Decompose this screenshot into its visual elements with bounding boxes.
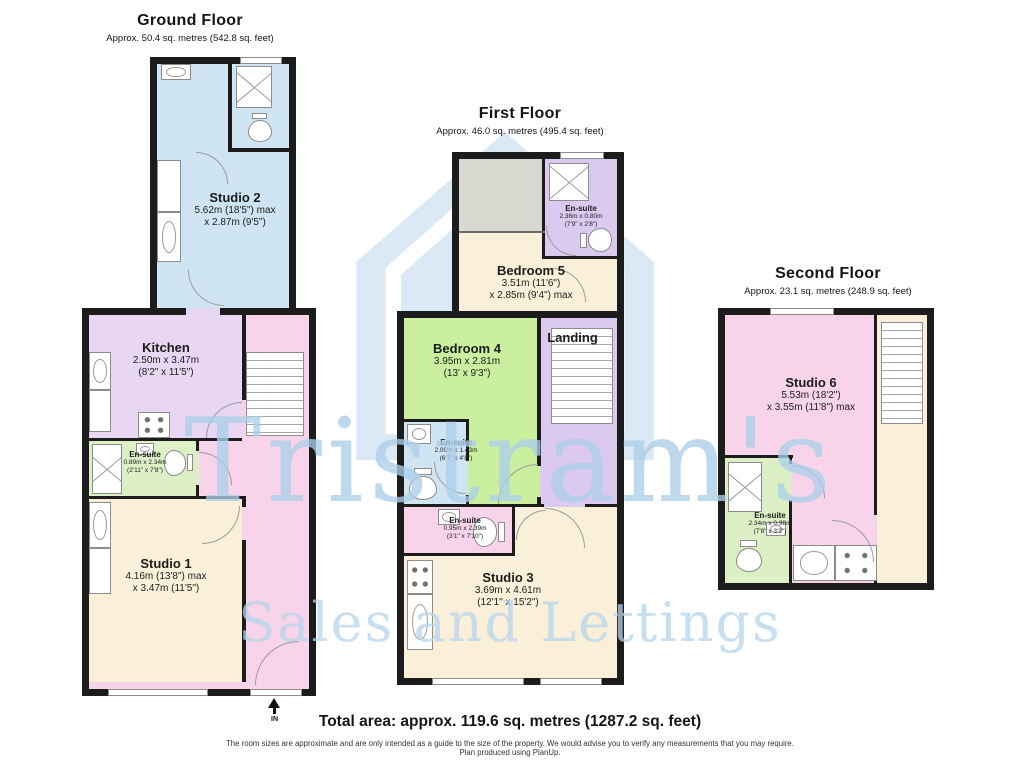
interior-wall <box>404 553 515 556</box>
sink-icon <box>161 64 191 80</box>
room-name: En-suite <box>425 438 487 447</box>
floor-subtitle-text: Approx. 46.0 sq. metres (495.4 sq. feet) <box>395 126 645 137</box>
room-label-bedroom5: Bedroom 5 3.51m (11'6") x 2.85m (9'4") m… <box>471 263 591 302</box>
room-label-ensuite-second: En-suite 2.34m x 0.98m (7'8" x 3'3") <box>732 511 808 536</box>
room-label-studio3: Studio 3 3.69m x 4.61m (12'1" x 15'2") <box>448 570 568 609</box>
room-name: Studio 1 <box>101 556 231 571</box>
entrance-threshold <box>250 689 302 696</box>
room-dims: x 3.55m (11'8") max <box>751 402 871 414</box>
floor-title-text: First Floor <box>395 105 645 123</box>
window <box>540 678 602 685</box>
sink-icon <box>89 502 111 548</box>
room-dims: 0.89m x 2.34m <box>107 459 183 467</box>
partition-line <box>459 231 545 233</box>
interior-wall <box>874 315 877 515</box>
interior-wall <box>89 438 242 441</box>
room-name: Studio 3 <box>448 570 568 585</box>
room-name: Kitchen <box>106 340 226 355</box>
room-dims: 5.62m (18'5") max <box>175 205 295 217</box>
shower-icon <box>728 462 762 512</box>
toilet-icon <box>248 120 272 142</box>
room-name: Landing <box>535 330 610 345</box>
entrance-arrow-icon <box>268 698 280 708</box>
produced-by-text: Plan produced using PlanUp. <box>0 748 1020 757</box>
room-dims: 4.16m (13'8") max <box>101 571 231 583</box>
interior-wall <box>404 419 469 422</box>
hob-icon <box>407 560 433 594</box>
disclaimer-text: The room sizes are approximate and are o… <box>0 739 1020 748</box>
room-dims: 2.50m x 3.47m <box>106 355 226 367</box>
shower-icon <box>549 163 589 201</box>
room-dims: (3'1" x 7'10") <box>430 533 500 541</box>
room-label-studio2: Studio 2 5.62m (18'5") max x 2.87m (9'5"… <box>175 190 295 229</box>
room-label-landing: Landing <box>535 330 610 345</box>
interior-wall <box>242 540 246 682</box>
window <box>560 152 604 159</box>
room-name: En-suite <box>732 511 808 520</box>
room-label-ensuite-low: En-suite 0.95m x 2.39m (3'1" x 7'10") <box>430 516 500 541</box>
interior-wall <box>196 441 199 451</box>
interior-wall <box>512 507 515 555</box>
window <box>770 308 834 315</box>
interior-wall <box>466 495 469 507</box>
room-dims: (6'7" x 4'8") <box>425 455 487 463</box>
bathroom-partition-wall <box>228 64 232 152</box>
room-label-bedroom4: Bedroom 4 3.95m x 2.81m (13' x 9'3") <box>407 341 527 380</box>
room-dims: 3.51m (11'6") <box>471 278 591 290</box>
room-dims: (13' x 9'3") <box>407 368 527 380</box>
hob-icon <box>138 412 170 438</box>
plans-layer: Ground Floor Approx. 50.4 sq. metres (54… <box>0 0 1020 765</box>
room-name: En-suite <box>546 204 616 213</box>
stairs <box>881 322 923 424</box>
room-dims: 2.00m x 1.43m <box>425 447 487 455</box>
room-dims: (7'9" x 2'8") <box>546 221 616 229</box>
room-dims: x 2.87m (9'5") <box>175 217 295 229</box>
door-opening <box>186 308 220 315</box>
room-dims: 5.53m (18'2") <box>751 390 871 402</box>
second-floor-title: Second Floor Approx. 23.1 sq. metres (24… <box>703 265 953 297</box>
first-floor-title: First Floor Approx. 46.0 sq. metres (495… <box>395 105 645 137</box>
floor-title-text: Second Floor <box>703 265 953 283</box>
room-name: En-suite <box>107 450 183 459</box>
room-label-ensuite-ground: En-suite 0.89m x 2.34m (2'11" x 7'8") <box>107 450 183 475</box>
room-name: Studio 2 <box>175 190 295 205</box>
room-name: Studio 6 <box>751 375 871 390</box>
room-dims: (12'1" x 15'2") <box>448 597 568 609</box>
void-area <box>459 159 545 233</box>
room-name: Bedroom 4 <box>407 341 527 356</box>
floor-subtitle-text: Approx. 23.1 sq. metres (248.9 sq. feet) <box>703 286 953 297</box>
room-dims: x 2.85m (9'4") max <box>471 290 591 302</box>
ground-floor-title: Ground Floor Approx. 50.4 sq. metres (54… <box>65 12 315 44</box>
room-dims: 3.95m x 2.81m <box>407 356 527 368</box>
room-dims: 0.95m x 2.39m <box>430 525 500 533</box>
stairs <box>246 352 304 436</box>
room-dims: x 3.47m (11'5") <box>101 583 231 595</box>
total-area-text: Total area: approx. 119.6 sq. metres (12… <box>0 713 1020 731</box>
room-label-kitchen: Kitchen 2.50m x 3.47m (8'2" x 11'5") <box>106 340 226 379</box>
interior-wall <box>242 499 246 507</box>
interior-wall <box>404 504 544 507</box>
room-dims: 2.34m x 0.98m <box>732 520 808 528</box>
floor-title-text: Ground Floor <box>65 12 315 30</box>
interior-wall <box>789 458 792 464</box>
kitchen-unit <box>89 390 111 432</box>
floor-subtitle-text: Approx. 50.4 sq. metres (542.8 sq. feet) <box>65 33 315 44</box>
disclaimer: The room sizes are approximate and are o… <box>0 739 1020 757</box>
toilet-icon <box>588 228 612 252</box>
total-area: Total area: approx. 119.6 sq. metres (12… <box>0 713 1020 731</box>
room-label-ensuite-mid: En-suite 2.00m x 1.43m (6'7" x 4'8") <box>425 438 487 463</box>
room-label-studio1: Studio 1 4.16m (13'8") max x 3.47m (11'5… <box>101 556 231 595</box>
interior-wall <box>585 504 617 507</box>
interior-wall <box>725 455 793 458</box>
floorplan-page: Ground Floor Approx. 50.4 sq. metres (54… <box>0 0 1020 765</box>
room-label-studio6: Studio 6 5.53m (18'2") x 3.55m (11'8") m… <box>751 375 871 414</box>
room-name: En-suite <box>430 516 500 525</box>
window <box>240 57 282 64</box>
room-dims: (7'8" x 3'3") <box>732 528 808 536</box>
interior-wall <box>542 159 545 259</box>
toilet-icon <box>736 548 762 572</box>
room-dims: 2.36m x 0.80m <box>546 213 616 221</box>
shower-icon <box>236 66 272 108</box>
interior-wall <box>545 256 617 259</box>
sink-icon <box>793 545 835 581</box>
interior-wall <box>89 496 246 499</box>
bathroom-partition-wall <box>228 148 289 152</box>
room-label-ensuite-top: En-suite 2.36m x 0.80m (7'9" x 2'8") <box>546 204 616 229</box>
room-dims: (8'2" x 11'5") <box>106 367 226 379</box>
toilet-icon <box>409 476 437 500</box>
window <box>432 678 524 685</box>
sink-icon <box>407 594 433 650</box>
room-dims: 3.69m x 4.61m <box>448 585 568 597</box>
window <box>108 689 208 696</box>
room-dims: (2'11" x 7'8") <box>107 467 183 475</box>
room-name: Bedroom 5 <box>471 263 591 278</box>
